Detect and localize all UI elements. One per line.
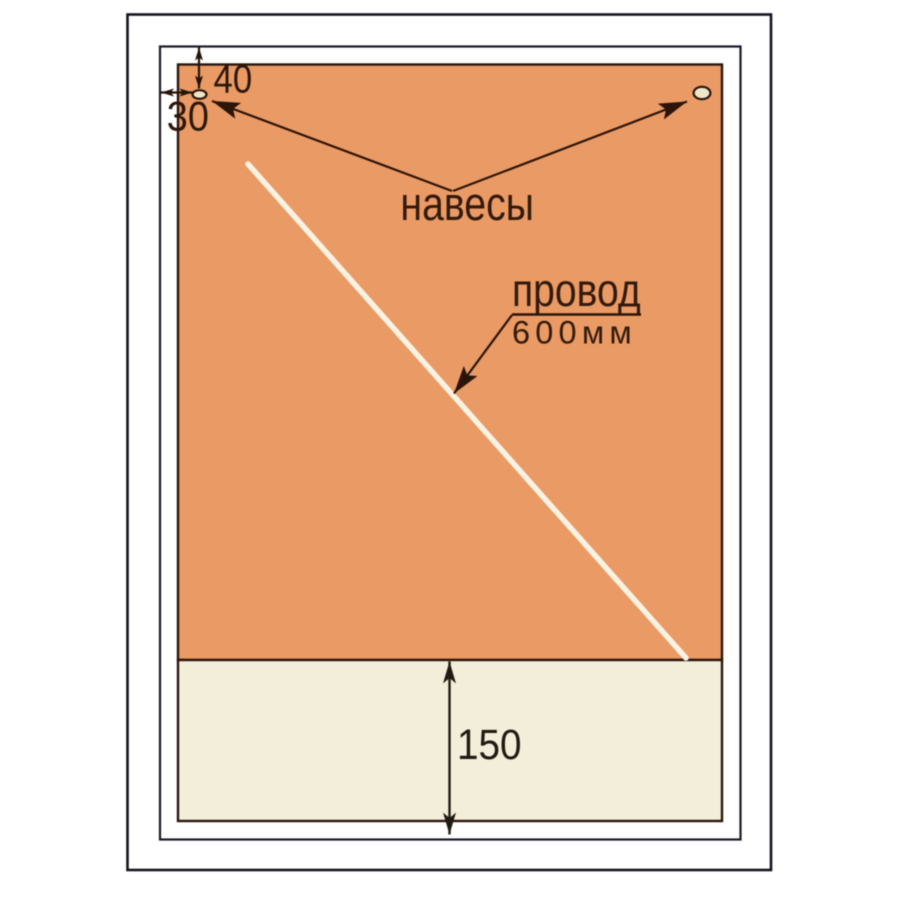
svg-text:30: 30 <box>167 94 209 140</box>
svg-text:150: 150 <box>457 720 522 768</box>
svg-text:40: 40 <box>214 56 253 101</box>
svg-text:600мм: 600мм <box>512 315 637 351</box>
svg-text:провод: провод <box>512 265 641 317</box>
